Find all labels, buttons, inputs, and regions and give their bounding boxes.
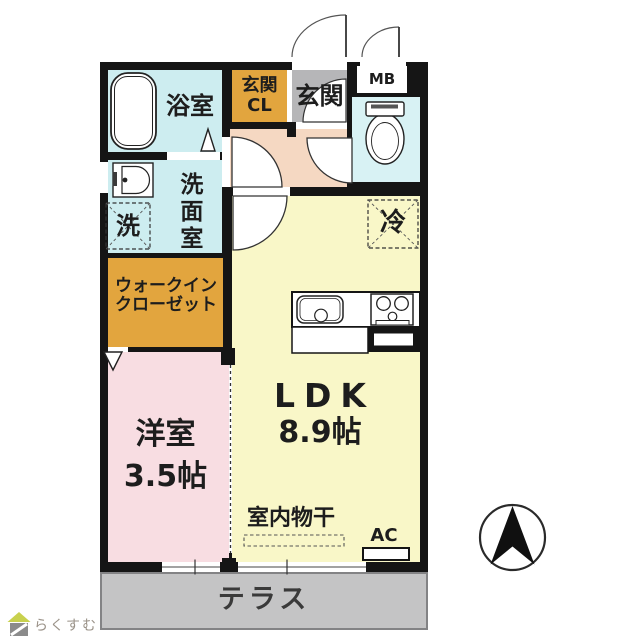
bathroom-label: 浴室 [158, 92, 222, 120]
room-western [108, 352, 229, 562]
terrace-sliding-window [238, 562, 366, 572]
logo-house-icon [8, 612, 31, 636]
toilet-door-opening [347, 138, 352, 183]
entrance-step [292, 122, 347, 129]
western-room-label: 洋室 [113, 416, 218, 454]
entrance-top-opening [292, 62, 347, 70]
partition-channel [229, 365, 232, 553]
entrance-label: 玄関 [292, 81, 347, 111]
compass-icon [480, 505, 545, 570]
indoor-drying-label: 室内物干 [238, 505, 344, 533]
floor-plan: 浴室 玄関 CL 玄関 MB 洗面室 洗 ウォークイン クローゼット 冷 LDK… [0, 0, 640, 640]
entrance-door-icon [292, 15, 346, 57]
ldk-size-label: 8.9帖 [240, 415, 400, 451]
meter-box-label: MB [355, 67, 409, 91]
washroom-label: 洗面室 [174, 166, 202, 258]
western-room-size-label: 3.5帖 [108, 458, 223, 496]
washroom-window [100, 162, 108, 193]
western-room-window [162, 562, 220, 572]
ldk-door-opening [233, 187, 290, 196]
partition-stub-top [221, 348, 235, 365]
logo-text: らくすむ [33, 617, 99, 637]
room-toilet [352, 97, 420, 182]
washroom-door-opening [222, 137, 230, 187]
refrigerator-label: 冷 [368, 200, 418, 248]
entrance-wall-stub [287, 122, 296, 137]
washing-machine-label: 洗 [106, 203, 150, 249]
meterbox-top-opening [360, 62, 406, 66]
entrance-closet-label: 玄関 CL [232, 74, 287, 118]
ldk-label: LDK [240, 376, 400, 416]
walk-in-closet-label: ウォークイン クローゼット [110, 268, 222, 324]
room-hall [230, 129, 347, 187]
meterbox-door-icon [362, 27, 399, 57]
ac-label: AC [364, 523, 404, 549]
terrace-label: テラス [204, 583, 324, 617]
bathroom-door-opening [167, 152, 220, 160]
ac-unit-box [362, 547, 410, 561]
wic-door-opening [108, 347, 128, 352]
